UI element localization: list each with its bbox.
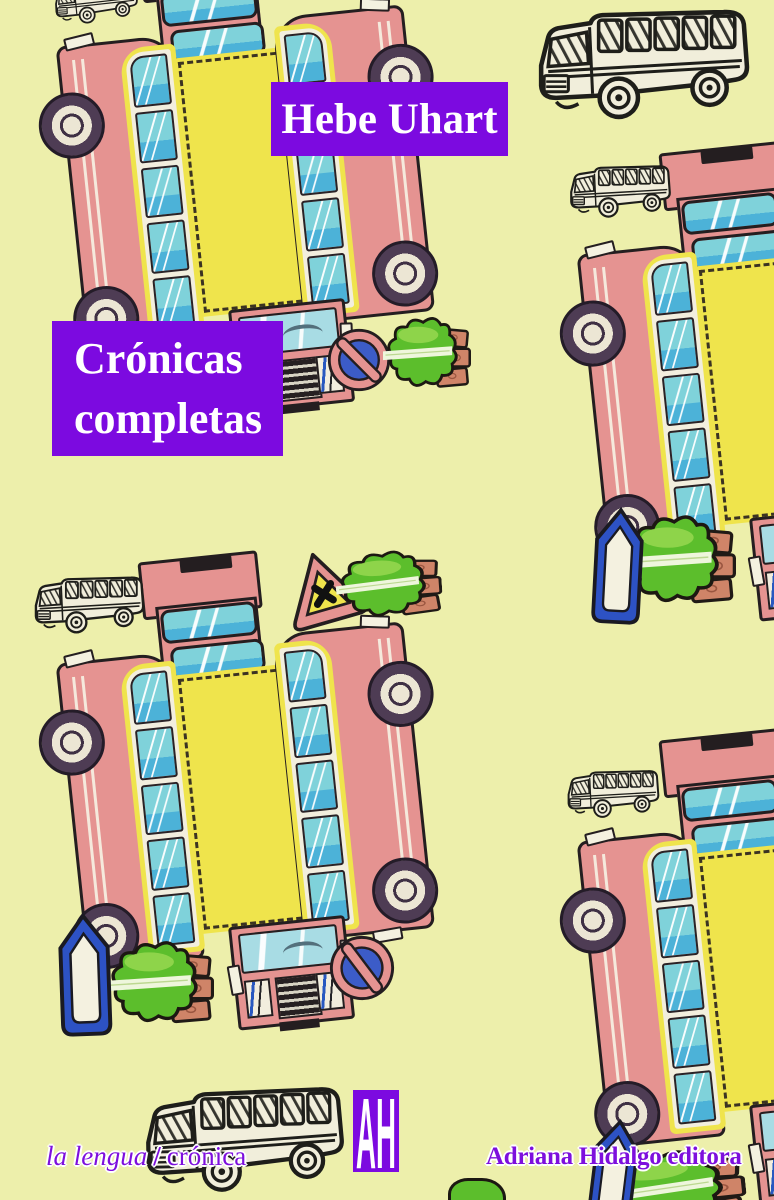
- bus-wheel: [557, 297, 630, 370]
- bus-wheel: [369, 237, 442, 310]
- sketch-minibus-icon: [526, 5, 760, 124]
- sketch-minibus-icon: [564, 163, 676, 220]
- sketch-minibus-icon: [28, 574, 150, 636]
- publisher-logo: AH: [353, 1090, 399, 1172]
- bus-wheel: [36, 706, 109, 779]
- author-box: Hebe Uhart: [271, 82, 508, 156]
- collection-series: la lengua: [46, 1141, 147, 1171]
- title-box: Crónicas completas: [52, 321, 283, 456]
- bus-front-panel: [749, 506, 774, 622]
- hedge-tree-icon: [333, 546, 444, 629]
- collection-label: la lengua/crónica: [46, 1141, 246, 1172]
- collection-genre: crónica: [167, 1141, 246, 1171]
- publisher-logo-text: AH: [356, 1090, 396, 1172]
- hedge-tree-icon: [383, 316, 471, 398]
- publisher-name: Adriana Hidalgo editora: [486, 1143, 742, 1171]
- boat-icon: [52, 911, 118, 1041]
- author-name: Hebe Uhart: [281, 95, 497, 144]
- book-title: Crónicas completas: [74, 334, 262, 443]
- boat-icon: [587, 503, 650, 632]
- hedge-bush-icon: [448, 1178, 506, 1200]
- collection-separator: /: [153, 1141, 161, 1171]
- sketch-minibus-icon: [133, 1082, 355, 1198]
- book-cover: Hebe Uhart Crónicas completas la lengua/…: [0, 0, 774, 1200]
- hedge-tree-icon: [106, 940, 214, 1035]
- bus-front-panel: [749, 1093, 774, 1200]
- bus-wheel: [369, 854, 442, 927]
- no-parking-sign-icon: [324, 930, 401, 1007]
- bus-wheel: [557, 884, 630, 957]
- sketch-minibus-icon: [49, 0, 143, 27]
- bus-wheel: [364, 658, 437, 731]
- sketch-minibus-icon: [562, 768, 664, 820]
- bus-wheel: [36, 89, 109, 162]
